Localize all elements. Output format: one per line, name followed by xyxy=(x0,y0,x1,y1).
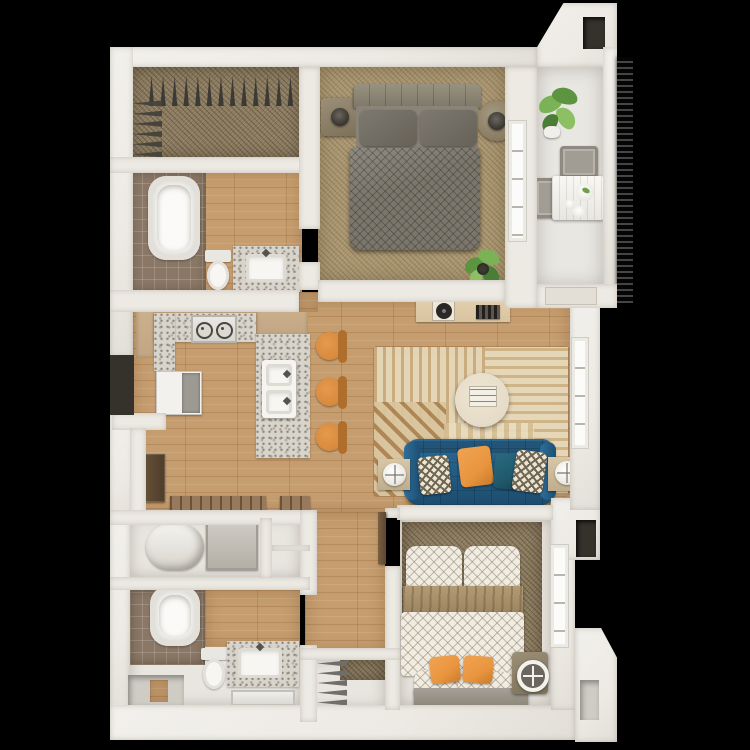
bed1-pillow xyxy=(420,110,477,146)
hanger-icon xyxy=(317,670,347,677)
hanger-icon xyxy=(132,120,162,127)
bed1-pillow xyxy=(360,110,417,146)
wall-bath1-kitchen-divider xyxy=(110,290,300,312)
toilet xyxy=(207,261,229,290)
hanger-icon xyxy=(194,76,201,106)
bedroom2-door-leaf xyxy=(378,512,386,564)
stool-back xyxy=(338,421,347,454)
wall-balcony-right xyxy=(603,47,617,290)
washer xyxy=(206,522,258,570)
hanger-icon xyxy=(241,76,248,106)
wall-bottom xyxy=(110,705,575,740)
bar-stool xyxy=(316,421,347,454)
hanger-icon xyxy=(317,680,347,687)
hanger-icon xyxy=(317,660,347,667)
connector-niche xyxy=(576,520,596,557)
table-lamp-icon xyxy=(488,112,506,130)
wall-top xyxy=(110,47,537,67)
hall-slat-mat xyxy=(280,496,310,511)
closet-hangers-side xyxy=(132,100,164,158)
orange-pillow xyxy=(462,655,494,684)
hanger-icon xyxy=(132,141,162,148)
chimney-niche xyxy=(583,17,605,49)
bar-stool xyxy=(316,376,347,409)
wall-entry-inner xyxy=(130,428,146,520)
bar-stool xyxy=(316,330,347,363)
media-console xyxy=(416,299,510,322)
wall-bedroom2-left-stub xyxy=(385,508,400,518)
stool-back xyxy=(338,330,347,363)
window-pane xyxy=(554,548,565,644)
living-room-window xyxy=(572,338,588,448)
wall-kitchen-bottom xyxy=(110,510,317,525)
balcony-plant xyxy=(538,88,580,140)
balcony-railing xyxy=(617,57,633,303)
hanger-icon xyxy=(264,76,271,106)
wall-bedroom2-top xyxy=(397,505,553,520)
hanger-icon xyxy=(229,76,236,106)
wardrobe-hangers xyxy=(317,660,347,706)
island-sink-unit xyxy=(262,360,296,418)
wall-closet-bath-divider xyxy=(110,157,318,173)
table-lamp-icon xyxy=(331,108,349,126)
floorplan-render xyxy=(0,0,750,750)
hallway-floor xyxy=(305,512,385,652)
hanger-icon xyxy=(132,131,162,138)
bedroom2-window xyxy=(551,545,568,647)
wall-left-lower xyxy=(110,520,130,715)
wall-wardrobe-top xyxy=(300,648,400,660)
bed1-headboard xyxy=(353,84,481,108)
napkin-icon xyxy=(572,206,587,217)
bathtub xyxy=(150,586,200,646)
kitchen-counter-left xyxy=(154,313,175,371)
niche-wood-item xyxy=(150,680,168,702)
plant-pot xyxy=(477,263,489,275)
hanger-icon xyxy=(132,100,162,107)
corner-niche xyxy=(580,680,599,720)
window-pane xyxy=(512,124,523,238)
orange-pillow xyxy=(429,655,462,685)
water-heater xyxy=(146,524,204,570)
chevron-pillow xyxy=(417,454,452,495)
hanger-icon xyxy=(275,76,282,106)
hanger-icon xyxy=(252,76,259,106)
round-clock-icon xyxy=(517,660,549,692)
hanger-icon xyxy=(171,76,178,106)
hall-door-threshold xyxy=(299,292,318,312)
utility-shelf xyxy=(272,545,310,551)
entry-door-opening xyxy=(110,355,134,415)
balcony-chair xyxy=(560,146,598,178)
window-pane xyxy=(575,341,585,445)
bathroom2-sink xyxy=(238,648,282,678)
wall-bedroom2-left xyxy=(385,566,400,710)
hanger-icon xyxy=(287,76,294,106)
speaker-icon xyxy=(476,305,500,319)
wall-bedroom1-living-divider xyxy=(318,280,505,302)
hanger-icon xyxy=(132,110,162,117)
hanger-icon xyxy=(217,76,224,106)
orange-pillow xyxy=(457,445,495,488)
round-lamp-icon xyxy=(383,463,406,486)
wall-bedroom1-left-upper xyxy=(299,67,320,229)
burner-icon xyxy=(216,322,233,339)
refrigerator-door xyxy=(182,373,200,413)
wall-utility-inner-divider xyxy=(260,518,272,578)
vanity-mirror xyxy=(231,690,295,706)
chevron-pillow xyxy=(511,449,547,494)
record-player-icon xyxy=(432,301,455,321)
hanger-icon xyxy=(183,76,190,106)
toilet xyxy=(203,659,225,689)
cooktop xyxy=(191,315,237,343)
balcony-door xyxy=(545,287,597,305)
bed1-duvet xyxy=(350,148,480,250)
bedroom1-window xyxy=(509,121,526,241)
coffee-table-tray xyxy=(469,386,497,407)
refrigerator xyxy=(156,371,202,415)
bathroom1-sink xyxy=(246,254,286,282)
burner-icon xyxy=(196,322,213,339)
closet-hangers-top xyxy=(148,76,294,108)
planter xyxy=(544,126,560,138)
bathroom2-wood-band xyxy=(205,590,300,647)
wall-utility-bath2-divider xyxy=(110,577,310,590)
wall-bedroom1-left-lower xyxy=(299,262,320,290)
hanger-icon xyxy=(317,689,347,696)
stool-back xyxy=(338,376,347,409)
bathtub xyxy=(148,176,200,260)
coffee-table xyxy=(455,373,509,427)
hanger-icon xyxy=(206,76,213,106)
